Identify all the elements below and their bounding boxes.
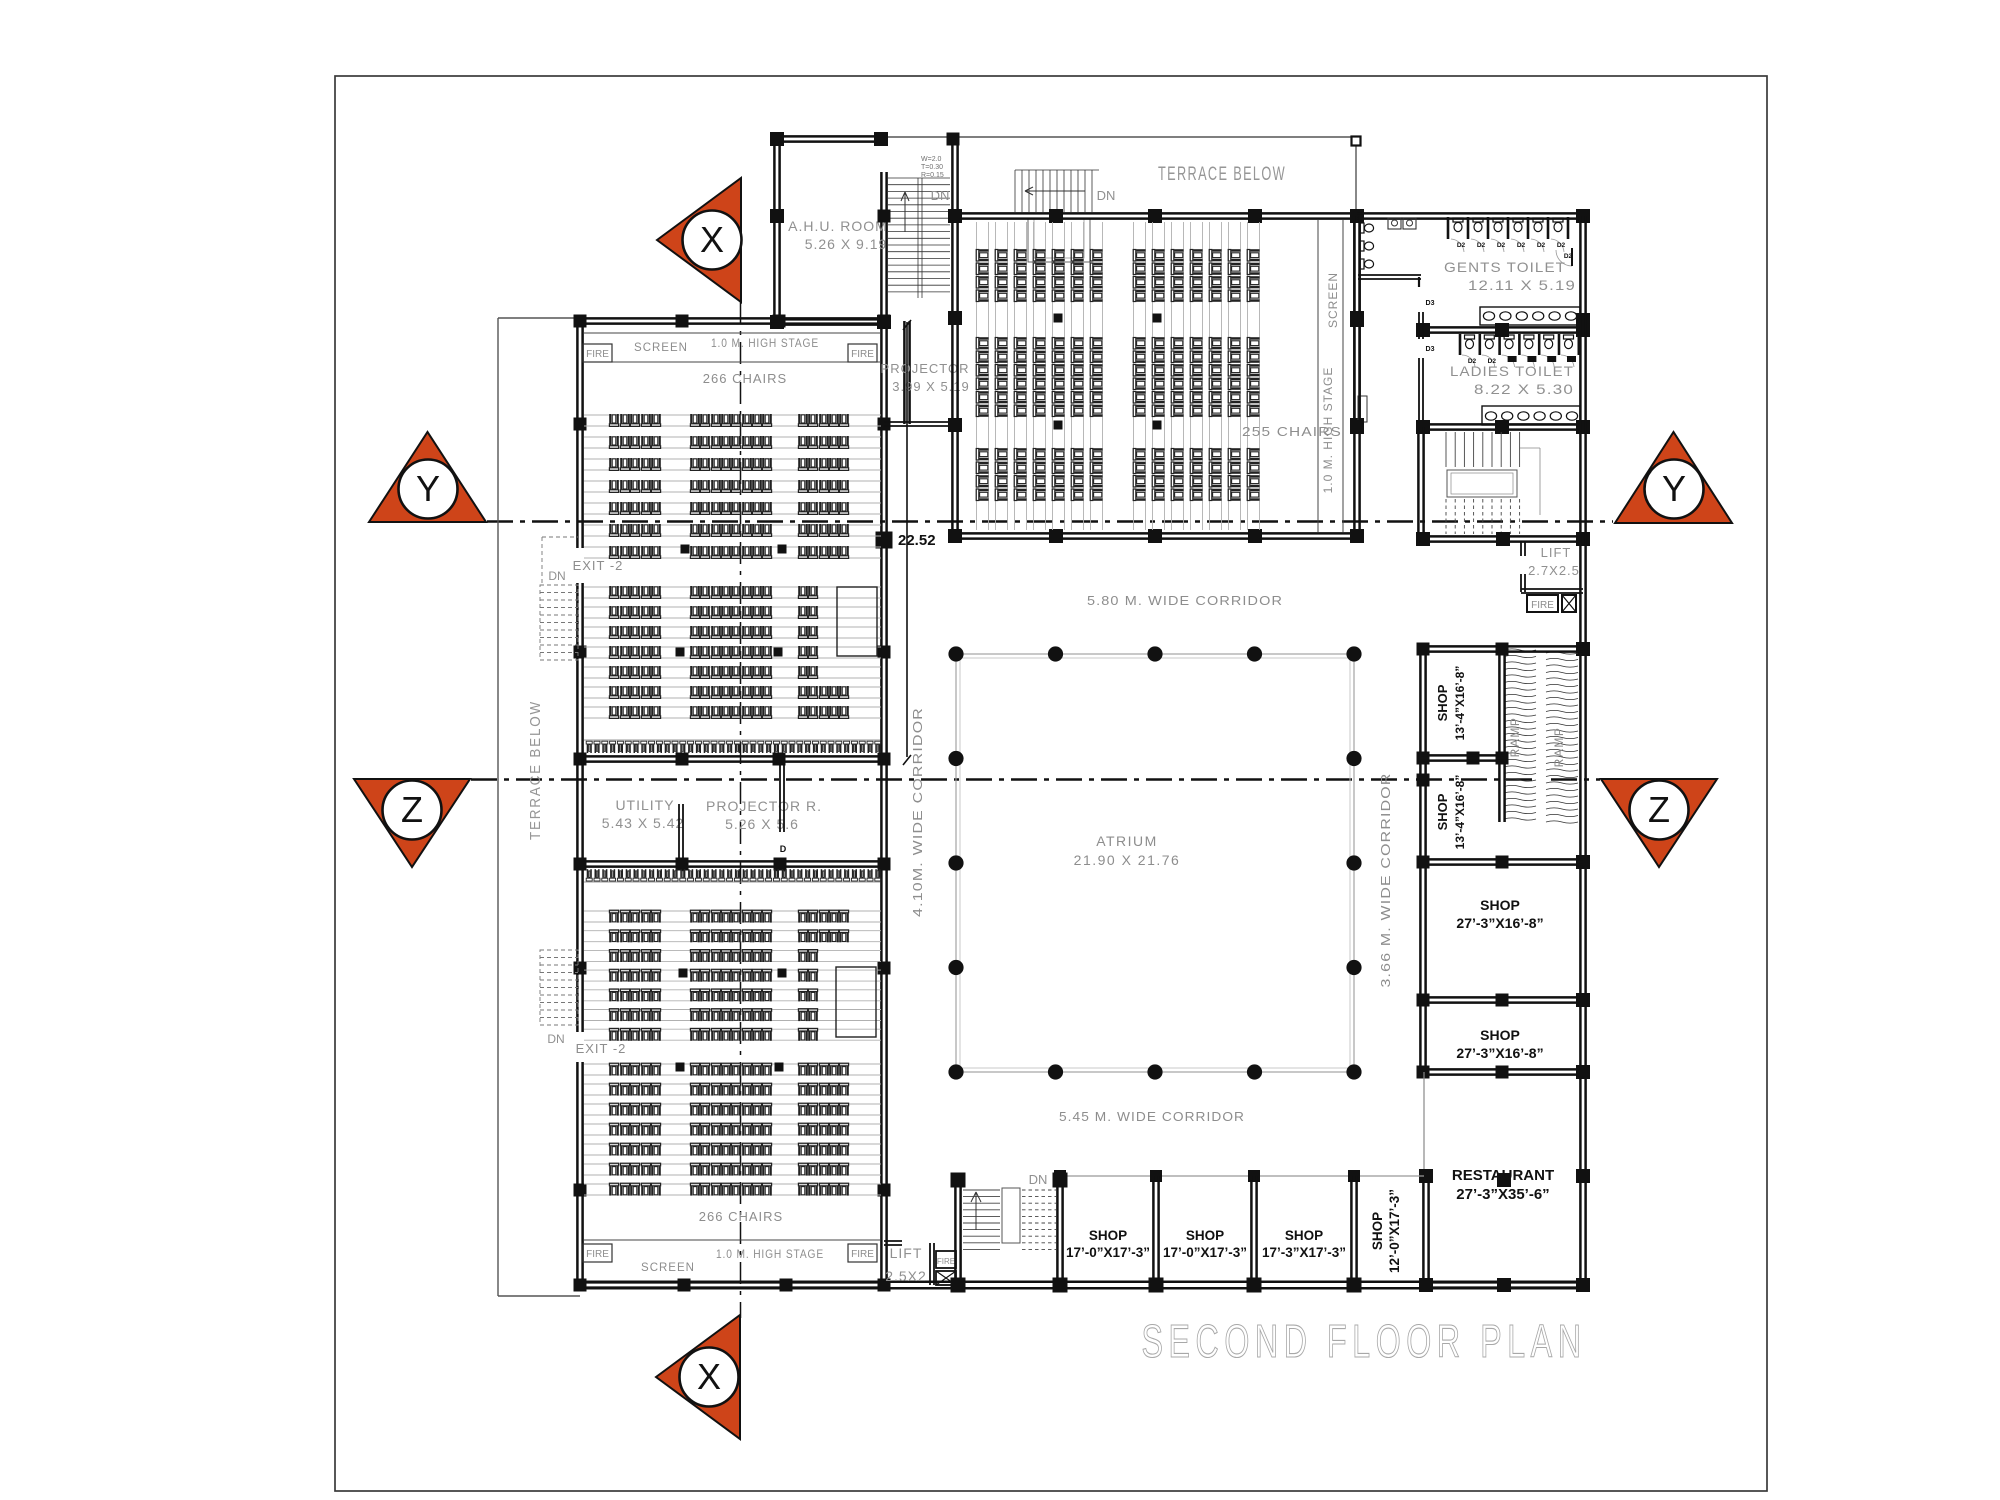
svg-text:5.26 X 5.6: 5.26 X 5.6	[725, 816, 799, 832]
svg-text:FIRE: FIRE	[851, 349, 874, 360]
svg-text:SCREEN: SCREEN	[1326, 272, 1340, 328]
svg-text:SHOP: SHOP	[1089, 1228, 1127, 1243]
svg-text:FIRE: FIRE	[586, 1249, 609, 1260]
svg-text:UTILITY: UTILITY	[615, 797, 674, 813]
svg-text:FIRE: FIRE	[937, 1257, 955, 1266]
svg-text:SHOP: SHOP	[1186, 1228, 1224, 1243]
svg-text:D2: D2	[1557, 242, 1566, 249]
svg-text:27’-3”X16’-8”: 27’-3”X16’-8”	[1456, 1045, 1543, 1061]
svg-text:5.26 X 9.19: 5.26 X 9.19	[805, 236, 888, 252]
svg-text:FIRE: FIRE	[1531, 600, 1554, 611]
svg-text:SCREEN: SCREEN	[634, 342, 688, 354]
svg-text:ATRIUM: ATRIUM	[1096, 833, 1158, 849]
svg-text:DN: DN	[931, 188, 950, 203]
svg-text:SHOP: SHOP	[1480, 897, 1520, 913]
svg-text:D3: D3	[1426, 346, 1435, 353]
svg-text:SECOND FLOOR PLAN: SECOND FLOOR PLAN	[1142, 1315, 1587, 1367]
svg-text:DN: DN	[1097, 188, 1116, 203]
svg-text:D2: D2	[1477, 242, 1486, 249]
svg-text:17’-3”X17’-3”: 17’-3”X17’-3”	[1262, 1245, 1346, 1260]
svg-text:R=0.15: R=0.15	[921, 172, 944, 179]
svg-text:RAMP: RAMP	[1552, 727, 1566, 768]
svg-text:D: D	[780, 844, 787, 854]
svg-text:1.0 M. HIGH STAGE: 1.0 M. HIGH STAGE	[711, 336, 819, 350]
svg-text:X: X	[700, 219, 724, 260]
svg-text:3.66 M. WIDE CORRIDOR: 3.66 M. WIDE CORRIDOR	[1378, 773, 1393, 988]
svg-text:4.10M. WIDE CORRIDOR: 4.10M. WIDE CORRIDOR	[910, 707, 925, 917]
svg-text:SHOP: SHOP	[1480, 1027, 1520, 1043]
svg-text:LIFT: LIFT	[1541, 545, 1572, 560]
svg-text:27’-3”X35’-6”: 27’-3”X35’-6”	[1456, 1186, 1549, 1203]
svg-text:266 CHAIRS: 266 CHAIRS	[699, 1209, 783, 1224]
svg-text:W=2.0: W=2.0	[921, 156, 942, 163]
svg-text:PROJECTOR R.: PROJECTOR R.	[706, 798, 822, 814]
svg-text:SHOP: SHOP	[1435, 793, 1450, 830]
svg-text:LIFT: LIFT	[890, 1245, 923, 1261]
svg-text:FIRE: FIRE	[851, 1249, 874, 1260]
svg-text:1.0 M. HIGH STAGE: 1.0 M. HIGH STAGE	[716, 1247, 824, 1261]
svg-text:8.22 X 5.30: 8.22 X 5.30	[1474, 381, 1574, 397]
svg-text:Y: Y	[416, 468, 440, 509]
svg-text:5.80 M. WIDE CORRIDOR: 5.80 M. WIDE CORRIDOR	[1087, 593, 1283, 608]
svg-text:TERRACE BELOW: TERRACE BELOW	[527, 700, 544, 840]
svg-text:D2: D2	[1457, 242, 1466, 249]
svg-text:DN: DN	[1029, 1172, 1048, 1187]
svg-text:22.52: 22.52	[898, 532, 936, 549]
svg-text:13’-4”X16’-8”: 13’-4”X16’-8”	[1453, 775, 1467, 850]
svg-text:Z: Z	[401, 789, 423, 830]
svg-text:SHOP: SHOP	[1285, 1228, 1323, 1243]
svg-text:SHOP: SHOP	[1435, 684, 1450, 721]
svg-text:Y: Y	[1662, 468, 1686, 509]
svg-text:2.7X2.5: 2.7X2.5	[1528, 563, 1580, 578]
svg-text:T=0.30: T=0.30	[921, 164, 943, 171]
svg-text:EXIT -2: EXIT -2	[576, 1041, 627, 1056]
svg-text:TERRACE BELOW: TERRACE BELOW	[1158, 164, 1286, 185]
svg-text:LADIES TOILET: LADIES TOILET	[1450, 363, 1574, 379]
svg-text:RAMP: RAMP	[1508, 717, 1522, 758]
svg-text:17’-0”X17’-3”: 17’-0”X17’-3”	[1163, 1245, 1247, 1260]
svg-text:D3: D3	[1426, 300, 1435, 307]
svg-text:2.5X2: 2.5X2	[885, 1268, 927, 1284]
svg-text:EXIT -2: EXIT -2	[573, 558, 624, 573]
svg-text:5.45 M. WIDE CORRIDOR: 5.45 M. WIDE CORRIDOR	[1059, 1109, 1245, 1124]
svg-text:17’-0”X17’-3”: 17’-0”X17’-3”	[1066, 1245, 1150, 1260]
svg-text:GENTS TOILET: GENTS TOILET	[1444, 259, 1566, 275]
svg-text:27’-3”X16’-8”: 27’-3”X16’-8”	[1456, 915, 1543, 931]
svg-text:DN: DN	[547, 1032, 564, 1046]
svg-text:5.43 X 5.42: 5.43 X 5.42	[602, 815, 685, 831]
svg-text:FIRE: FIRE	[586, 349, 609, 360]
svg-text:RESTAURANT: RESTAURANT	[1452, 1167, 1554, 1184]
svg-text:1.0 M. HIGH STAGE: 1.0 M. HIGH STAGE	[1321, 367, 1335, 494]
svg-text:X: X	[697, 1356, 721, 1397]
svg-text:D2: D2	[1517, 242, 1526, 249]
svg-text:D2: D2	[1497, 242, 1506, 249]
svg-text:266 CHAIRS: 266 CHAIRS	[703, 371, 787, 386]
svg-text:Z: Z	[1648, 789, 1670, 830]
svg-text:A.H.U. ROOM: A.H.U. ROOM	[788, 218, 888, 234]
svg-text:PROJECTOR: PROJECTOR	[881, 361, 970, 376]
svg-text:21.90 X 21.76: 21.90 X 21.76	[1074, 852, 1181, 868]
svg-text:SHOP: SHOP	[1370, 1212, 1385, 1250]
svg-text:DN: DN	[548, 569, 565, 583]
svg-text:12.11 X 5.19: 12.11 X 5.19	[1468, 277, 1576, 293]
svg-text:SCREEN: SCREEN	[641, 1262, 695, 1274]
svg-text:13’-4”X16’-8”: 13’-4”X16’-8”	[1453, 666, 1467, 741]
svg-text:12’-0”X17’-3”: 12’-0”X17’-3”	[1387, 1189, 1402, 1273]
svg-text:D2: D2	[1537, 242, 1546, 249]
